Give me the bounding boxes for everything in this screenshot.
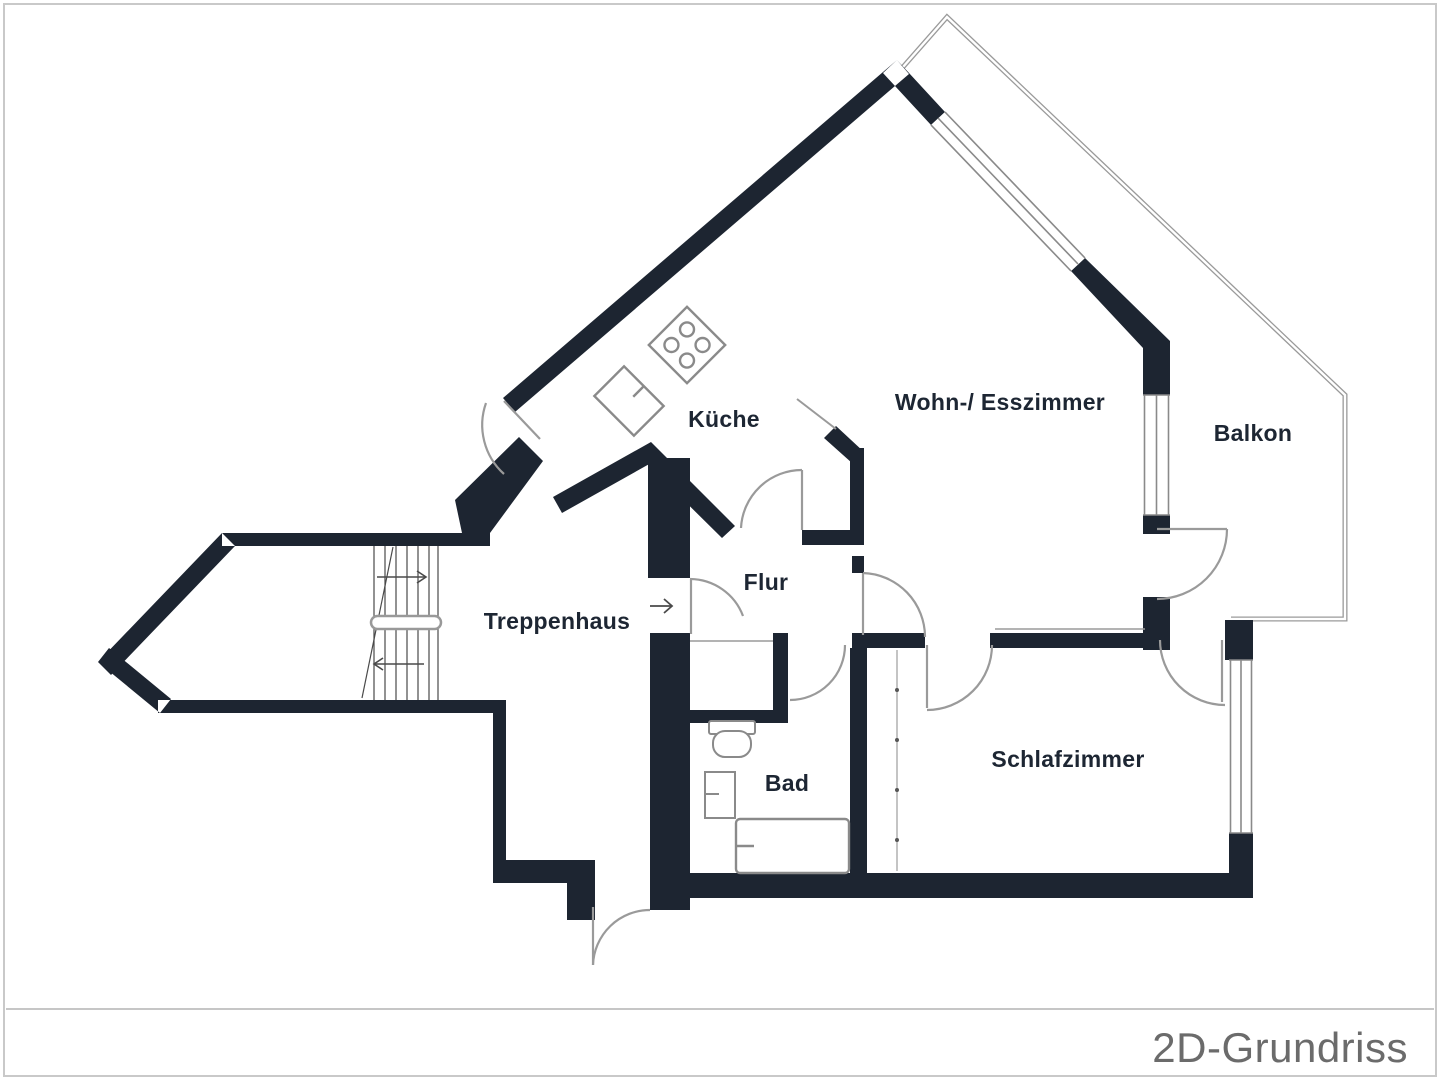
entry-direction-arrow (650, 599, 672, 613)
balcony-door-living (1157, 529, 1227, 599)
room-label-schlafzimmer: Schlafzimmer (991, 746, 1144, 772)
bathtub-icon (736, 819, 849, 873)
exterior-door-bottom (593, 907, 650, 965)
window-living-diagonal (931, 112, 1085, 271)
stove-icon (649, 307, 725, 383)
kitchen-corridor-door (741, 470, 802, 530)
window-bedroom-right (1229, 660, 1253, 833)
bad-door (790, 645, 845, 700)
schlafzimmer-door (927, 645, 992, 710)
flur-entry-door (690, 579, 743, 634)
room-label-wohn-esszimmer: Wohn-/ Esszimmer (895, 389, 1105, 415)
room-label-balkon: Balkon (1214, 420, 1292, 446)
walls (98, 60, 1253, 920)
room-label-flur: Flur (744, 569, 789, 595)
stairs-down-arrow (374, 658, 424, 670)
footer-title: 2D-Grundriss (1152, 1024, 1408, 1071)
floorplan-canvas: Küche Wohn-/ Esszimmer Balkon Flur Trepp… (0, 0, 1440, 1080)
floorplan-page: Küche Wohn-/ Esszimmer Balkon Flur Trepp… (0, 0, 1440, 1080)
room-label-kueche: Küche (688, 406, 760, 432)
kitchen-sink-icon (594, 366, 663, 435)
living-nook-door (863, 573, 925, 637)
stair-landing-bar (371, 616, 441, 629)
stairs-up-arrow (377, 571, 426, 583)
kitchen-open-boundary-line (797, 399, 836, 429)
stairs (362, 546, 441, 700)
room-label-treppenhaus: Treppenhaus (484, 608, 630, 634)
window-living-right (1143, 395, 1170, 515)
toilet-icon (709, 721, 755, 757)
washbasin-icon (705, 772, 735, 818)
bedroom-partition-line (895, 650, 899, 871)
room-label-bad: Bad (765, 770, 809, 796)
